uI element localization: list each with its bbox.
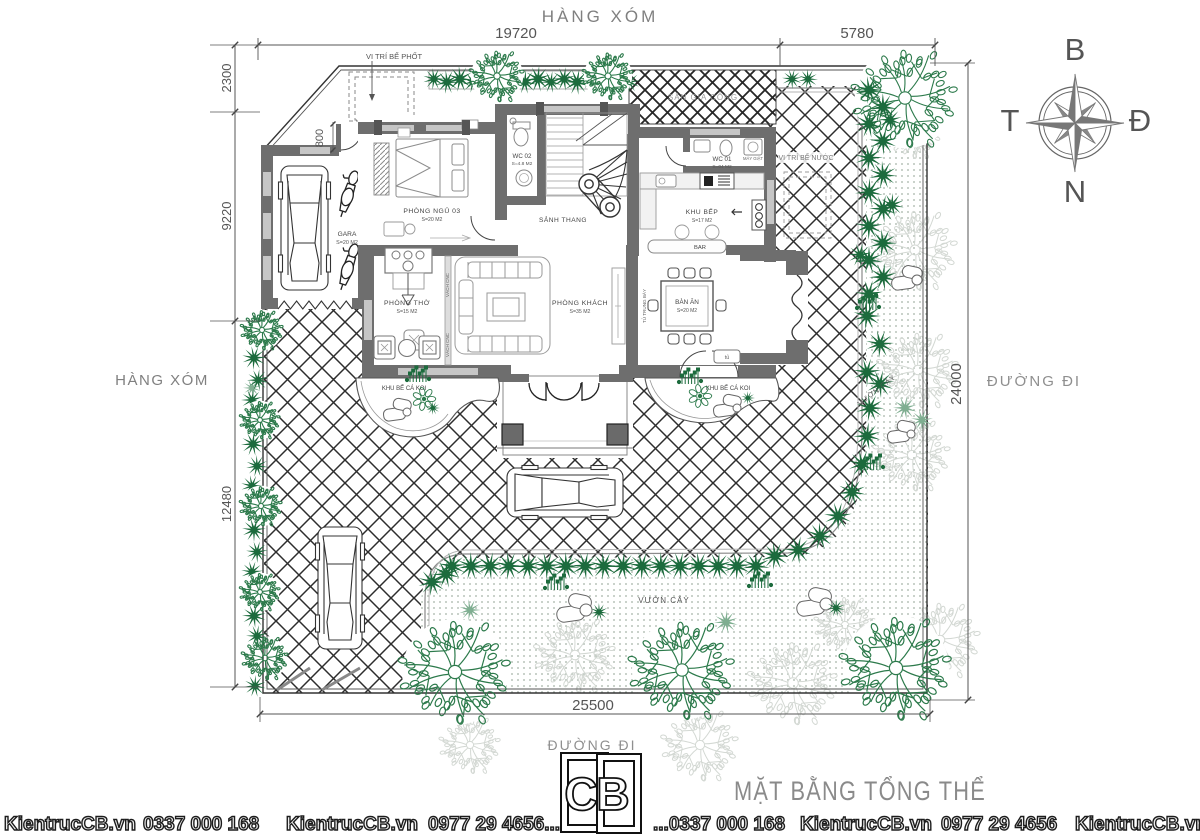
svg-text:N: N: [1064, 174, 1086, 209]
svg-text:25500: 25500: [572, 697, 614, 714]
svg-text:S=17 M2: S=17 M2: [692, 218, 712, 224]
svg-text:WC 02: WC 02: [513, 153, 532, 160]
svg-text:S=15 M2: S=15 M2: [397, 309, 418, 315]
svg-text:VI TRÍ BỂ NƯỚC: VI TRÍ BỂ NƯỚC: [778, 153, 833, 162]
svg-text:HÀNG XÓM: HÀNG XÓM: [115, 372, 209, 389]
svg-text:24000: 24000: [948, 363, 965, 405]
svg-text:SÂN GIA CÔNG: SÂN GIA CÔNG: [668, 93, 738, 102]
svg-text:S=20 M2: S=20 M2: [336, 240, 358, 246]
svg-text:ĐƯỜNG ĐI: ĐƯỜNG ĐI: [548, 737, 637, 753]
svg-text:2300: 2300: [219, 64, 234, 93]
svg-text:HÀNG XÓM: HÀNG XÓM: [542, 7, 659, 26]
svg-text:9220: 9220: [219, 202, 234, 231]
svg-text:800: 800: [314, 129, 326, 147]
svg-text:SẢNH THANG: SẢNH THANG: [539, 215, 587, 224]
svg-text:PHÒNG KHÁCH: PHÒNG KHÁCH: [552, 298, 608, 307]
svg-text:S=20 M2: S=20 M2: [422, 217, 443, 223]
svg-text:19720: 19720: [495, 25, 537, 42]
svg-text:S=04 M2: S=04 M2: [712, 164, 732, 170]
svg-text:VI TRÍ BỂ PHỐT: VI TRÍ BỂ PHỐT: [366, 51, 423, 61]
svg-text:PHÒNG NGỦ 03: PHÒNG NGỦ 03: [403, 206, 460, 215]
svg-text:C: C: [564, 768, 597, 820]
svg-text:5780: 5780: [840, 25, 873, 42]
svg-text:BÀN ĂN: BÀN ĂN: [675, 297, 699, 306]
svg-text:S=20 M2: S=20 M2: [677, 308, 697, 314]
svg-text:MẶT BẰNG TỔNG THỂ: MẶT BẰNG TỔNG THỂ: [734, 775, 986, 806]
svg-text:B: B: [596, 768, 629, 820]
svg-text:Đ: Đ: [1129, 103, 1151, 138]
svg-text:VÁCH CNC: VÁCH CNC: [444, 272, 450, 297]
svg-text:WC 01: WC 01: [713, 156, 732, 163]
svg-text:T: T: [1001, 103, 1020, 138]
svg-text:S=35 M2: S=35 M2: [570, 309, 591, 315]
svg-text:tủ: tủ: [725, 354, 730, 361]
svg-text:MÁY GIẶT: MÁY GIẶT: [743, 156, 763, 161]
svg-text:S=4.8 M2: S=4.8 M2: [512, 161, 533, 167]
svg-text:TỦ TRUNG BÀY: TỦ TRUNG BÀY: [641, 289, 647, 323]
svg-text:VÁCH CNC: VÁCH CNC: [444, 332, 450, 357]
svg-text:VƯỜN CÂY: VƯỜN CÂY: [638, 596, 689, 605]
svg-text:12480: 12480: [219, 486, 234, 522]
svg-text:ĐƯỜNG ĐI: ĐƯỜNG ĐI: [987, 373, 1081, 390]
svg-text:PHÒNG THỜ: PHÒNG THỜ: [384, 298, 430, 307]
svg-text:BAR: BAR: [694, 245, 706, 251]
svg-text:GARA: GARA: [338, 231, 357, 238]
svg-text:B: B: [1065, 32, 1086, 67]
svg-text:KHU BỂ CÁ KOI: KHU BỂ CÁ KOI: [706, 385, 751, 392]
